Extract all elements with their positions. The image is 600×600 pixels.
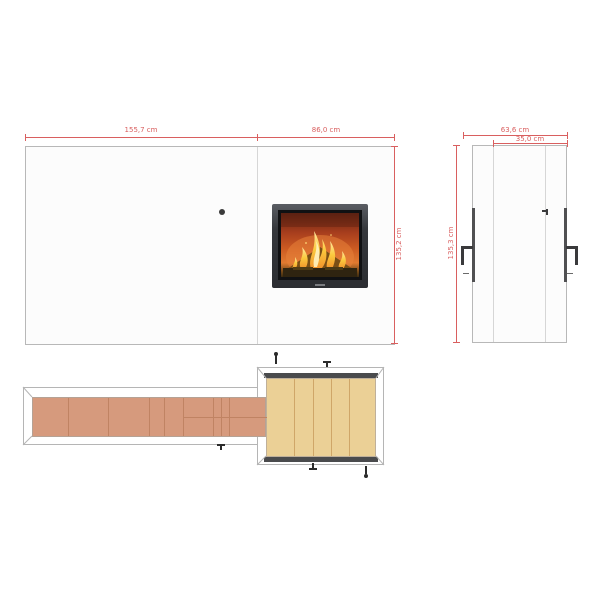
dim-tick bbox=[453, 342, 460, 343]
miter-lines bbox=[20, 360, 390, 480]
dim-line-front-width-left bbox=[25, 137, 258, 138]
screw-icon bbox=[220, 445, 222, 450]
door-knob-icon bbox=[219, 209, 225, 215]
fire-window bbox=[281, 213, 359, 277]
side-edge-strip-left bbox=[472, 208, 475, 282]
handle-tick-right bbox=[567, 273, 573, 274]
side-section-line-front bbox=[493, 146, 494, 342]
handle-tick-left bbox=[463, 273, 469, 274]
front-panel-divider bbox=[257, 147, 258, 344]
screw-icon bbox=[326, 362, 328, 367]
latch-icon-bar bbox=[542, 210, 546, 212]
dim-tick bbox=[453, 145, 460, 146]
fireplace-insert bbox=[272, 204, 368, 288]
dim-line-side-depth-inner bbox=[493, 143, 568, 144]
side-view-body bbox=[472, 145, 567, 343]
dim-label-side-depth-inner: 35,0 cm bbox=[500, 135, 560, 143]
dim-tick bbox=[463, 132, 464, 139]
dim-line-side-height bbox=[456, 145, 457, 343]
dim-label-front-height: 135,2 cm bbox=[395, 214, 403, 274]
dim-label-side-height: 135,3 cm bbox=[447, 213, 455, 273]
dim-tick bbox=[493, 140, 494, 147]
dim-line-front-width-right bbox=[258, 137, 394, 138]
screw-head-icon bbox=[364, 474, 368, 478]
side-edge-strip-right bbox=[564, 208, 567, 282]
screw-head-icon bbox=[274, 352, 278, 356]
latch-icon bbox=[546, 209, 548, 215]
dim-label-side-depth: 63,6 cm bbox=[485, 126, 545, 134]
handle-icon-left-bar bbox=[461, 246, 464, 265]
side-section-line-back bbox=[545, 146, 546, 342]
screw-icon bbox=[309, 468, 317, 470]
technical-drawing-canvas: 155,7 cm 86,0 cm 135,2 cm 63,6 cm 35,0 c… bbox=[0, 0, 600, 600]
screw-icon bbox=[275, 355, 277, 364]
insert-brand-mark bbox=[315, 284, 325, 286]
dim-tick bbox=[25, 134, 26, 141]
dim-tick bbox=[567, 140, 568, 147]
handle-icon-right-bar bbox=[575, 246, 578, 265]
dim-tick bbox=[391, 146, 398, 147]
fire-image bbox=[281, 213, 359, 277]
dim-tick bbox=[567, 132, 568, 139]
screw-icon bbox=[365, 466, 367, 474]
dim-tick bbox=[394, 134, 395, 141]
dim-tick bbox=[391, 343, 398, 344]
dim-tick bbox=[257, 134, 258, 141]
dim-label-front-width-left: 155,7 cm bbox=[111, 126, 171, 134]
dim-label-front-width-right: 86,0 cm bbox=[296, 126, 356, 134]
